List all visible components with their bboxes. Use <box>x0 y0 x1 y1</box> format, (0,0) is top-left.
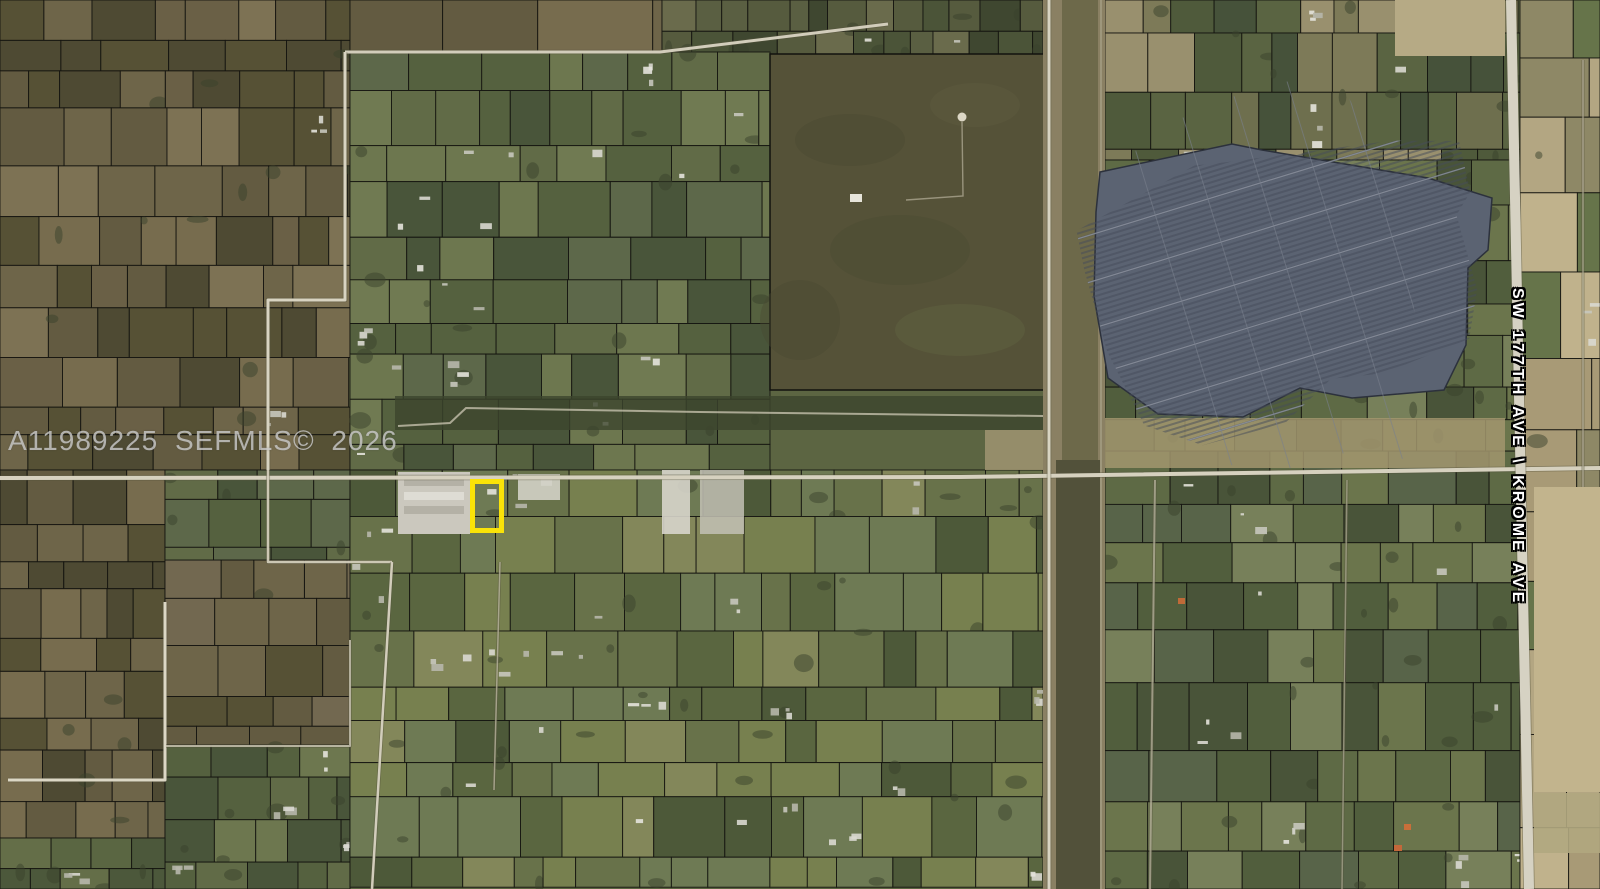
parcel-region-left-greens-bottom <box>165 741 358 889</box>
parcel-region-scrub-top-left <box>0 0 362 470</box>
satellite-map <box>0 0 1600 889</box>
parcel-region-left-greens-mid <box>163 470 350 560</box>
listing-photo: A11989225 SEFMLS© 2026 SW 177TH AVE \ KR… <box>0 0 1600 889</box>
parcel-region-left-scrub-lower <box>0 470 165 838</box>
parcel-region-scrub-top-strip <box>350 0 662 51</box>
parcel-region-left-greens-corner <box>0 838 165 889</box>
